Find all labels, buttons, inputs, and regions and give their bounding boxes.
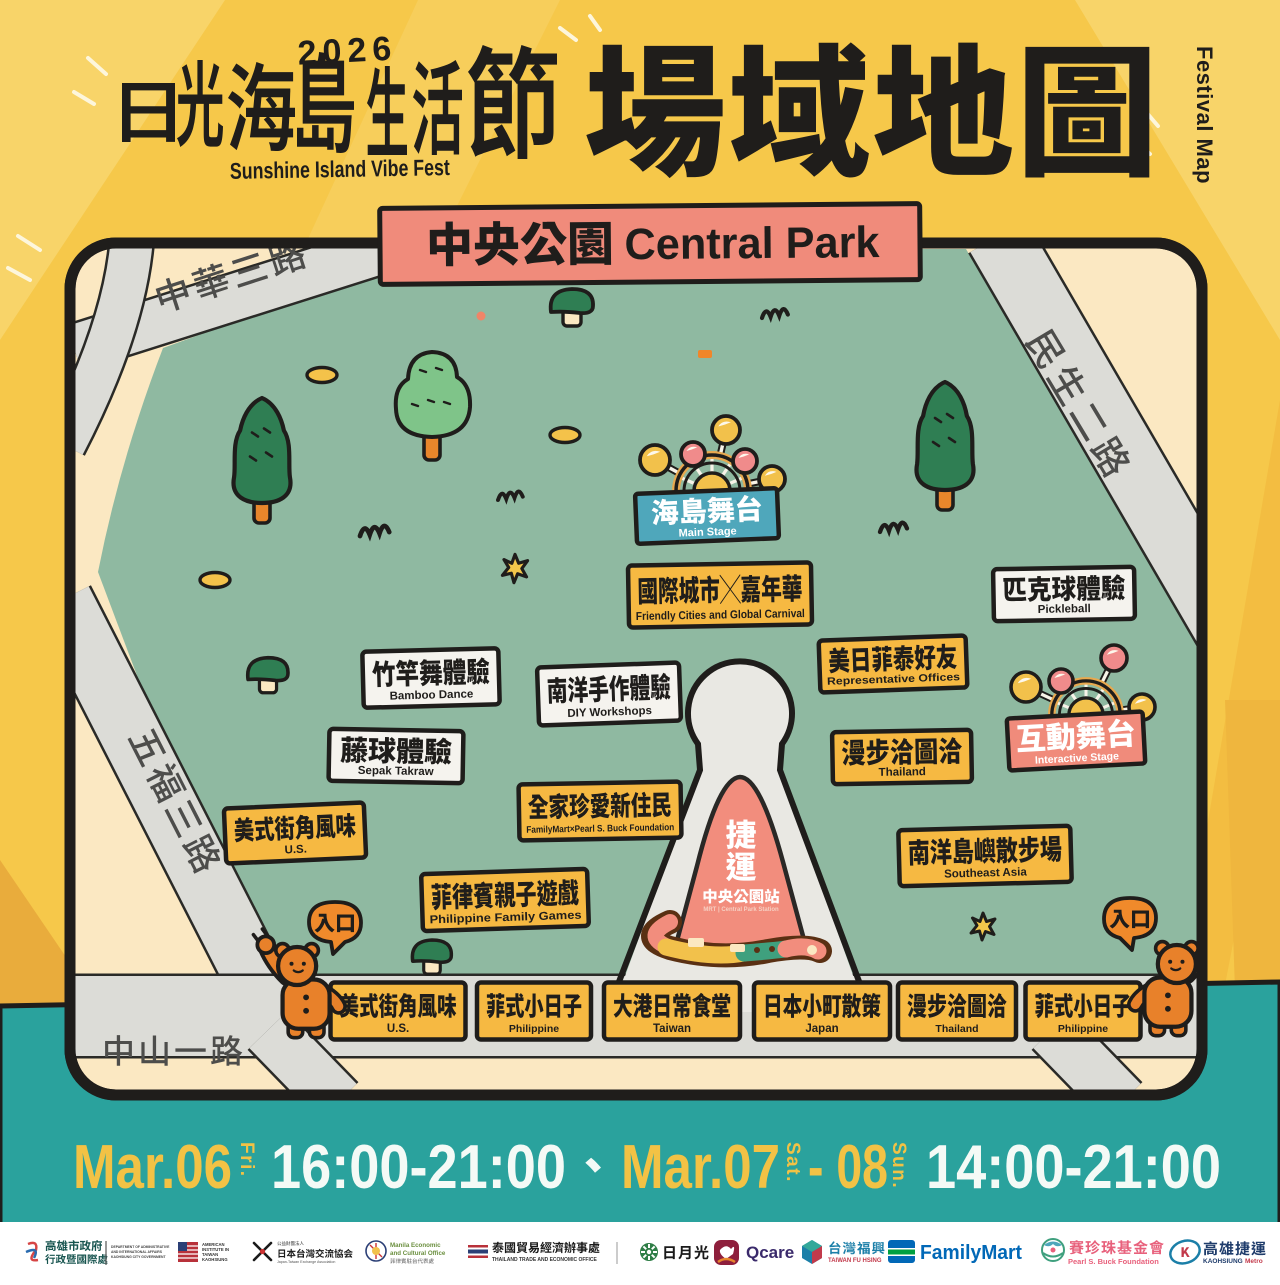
svg-text:Sunshine Island Vibe Fest: Sunshine Island Vibe Fest [230,154,451,184]
svg-text:Southeast Asia: Southeast Asia [944,866,1028,880]
svg-text:Fri.: Fri. [236,1142,257,1178]
svg-text:- 08: - 08 [808,1133,888,1202]
svg-text:Sun.: Sun. [888,1142,909,1189]
svg-text:Mar.06: Mar.06 [73,1133,232,1202]
svg-text:Metro: Metro [1245,1258,1263,1265]
svg-text:Pearl S. Buck Foundation: Pearl S. Buck Foundation [1068,1257,1159,1266]
svg-text:Bamboo Dance: Bamboo Dance [389,688,473,702]
svg-text:Sepak Takraw: Sepak Takraw [358,765,434,778]
svg-text:Mar.07: Mar.07 [621,1133,780,1202]
svg-text:Central Park: Central Park [624,218,880,269]
svg-text:Sat.: Sat. [782,1142,803,1183]
svg-text:Thailand: Thailand [879,766,926,779]
svg-text:KAOHSIUNG: KAOHSIUNG [1203,1258,1243,1265]
svg-text:Pickleball: Pickleball [1038,603,1091,616]
svg-text:Japan-Taiwan Exchange Associat: Japan-Taiwan Exchange Association [277,1260,335,1264]
svg-text:Japan: Japan [805,1023,838,1035]
svg-text:公益財團法人: 公益財團法人 [277,1240,304,1247]
svg-text:KAOHSIUNG: KAOHSIUNG [202,1257,228,1262]
svg-text:16:00-21:00: 16:00-21:00 [271,1133,566,1202]
svg-text:Taiwan: Taiwan [653,1023,691,1035]
svg-text:AND INTERNATIONAL AFFAIRS: AND INTERNATIONAL AFFAIRS [111,1250,163,1254]
svg-text:14:00-21:00: 14:00-21:00 [926,1133,1221,1202]
svg-text:FamilyMart: FamilyMart [920,1242,1022,1264]
svg-text:Philippine: Philippine [509,1023,559,1035]
svg-text:KAOHSIUNG CITY GOVERNMENT: KAOHSIUNG CITY GOVERNMENT [111,1255,166,1259]
svg-text:Main Stage: Main Stage [678,525,737,539]
svg-text:MRT | Central Park Station: MRT | Central Park Station [703,907,779,913]
svg-text:THAILAND TRADE AND ECONOMIC OF: THAILAND TRADE AND ECONOMIC OFFICE [492,1257,597,1263]
svg-text:U.S.: U.S. [284,844,307,857]
svg-text:Qcare: Qcare [746,1243,794,1262]
svg-text:TAIWAN FU HSING: TAIWAN FU HSING [828,1258,882,1264]
svg-text:Thailand: Thailand [935,1023,978,1035]
svg-text:and Cultural Office: and Cultural Office [390,1250,446,1257]
svg-text:Philippine: Philippine [1058,1023,1108,1035]
svg-text:Festival Map: Festival Map [1192,46,1217,184]
svg-text:U.S.: U.S. [387,1023,409,1035]
svg-text:Manila Economic: Manila Economic [390,1242,441,1249]
svg-text:DEPARTMENT OF ADMINISTRATIVE: DEPARTMENT OF ADMINISTRATIVE [111,1245,170,1249]
